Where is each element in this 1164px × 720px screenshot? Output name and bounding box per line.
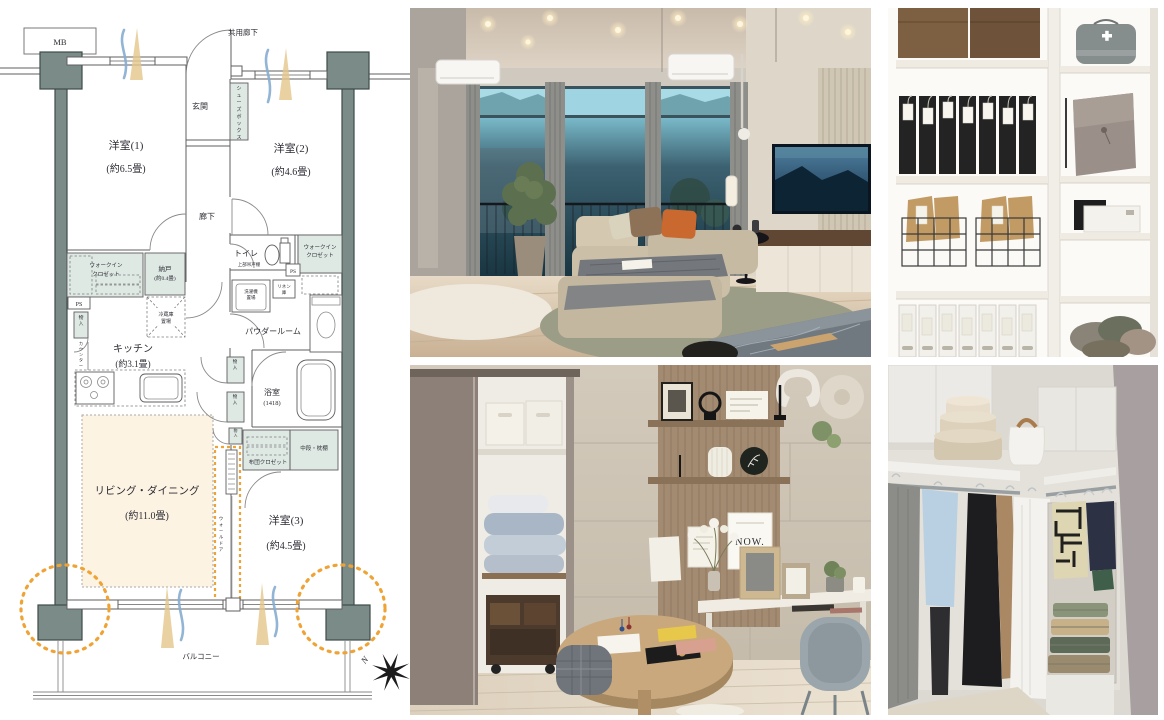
walk-in-closet-left: ウォークイン クロゼット	[67, 253, 143, 297]
ac-unit-left	[436, 60, 500, 84]
leaf-art	[740, 447, 768, 475]
label-living-dining-size: (約11.0畳)	[125, 509, 169, 522]
label-powder-room: パウダールーム	[245, 326, 301, 336]
photo-desk-room: NOW.	[410, 365, 871, 715]
plaid-pouf	[556, 645, 612, 695]
label-bathroom: 浴室	[264, 387, 280, 397]
label-bathroom-size: (1418)	[263, 400, 280, 407]
fridge-space: 冷蔵庫 置場	[147, 297, 185, 337]
label-nando: 納戸	[159, 264, 173, 273]
kitchen-fixtures	[75, 370, 185, 406]
navy-item	[1086, 501, 1116, 571]
label-kitchen-size: (約3.1畳)	[115, 358, 150, 369]
futon-closet: 中段・枕棚 布団クロゼット	[243, 430, 338, 470]
pipe-space-right: PS	[286, 264, 300, 276]
bucket-bag	[1009, 420, 1045, 465]
label-wall-door: ウォールドア	[219, 515, 224, 553]
label-mb: MB	[53, 37, 67, 47]
label-room1: 洋室(1)	[109, 138, 144, 152]
linen-cabinet: リネン 庫	[273, 280, 295, 298]
green-bag	[1092, 569, 1114, 591]
fabric-box	[526, 401, 562, 445]
label-kitchen: キッチン	[113, 343, 153, 355]
bathroom: 浴室 (1418)	[263, 360, 335, 420]
label-toilet-note: 上部吊戸棚	[238, 261, 261, 268]
storage-cart	[486, 595, 560, 674]
label-futon-closet: 布団クロゼット	[249, 458, 288, 466]
label-wic-right-1: ウォークイン	[303, 243, 337, 251]
label-washer-2: 置場	[247, 294, 256, 301]
label-fridge-1: 冷蔵庫	[158, 311, 173, 318]
stove-icon	[76, 372, 114, 404]
pillar-bottom-left	[38, 605, 82, 640]
base-cabinet	[1046, 675, 1114, 715]
label-counter: カウンター	[79, 341, 83, 368]
label-ps-left: PS	[76, 302, 83, 308]
gray-coat	[888, 483, 920, 709]
label-balcony: バルコニー	[182, 652, 219, 661]
label-entrance: 玄関	[192, 101, 208, 111]
label-wic-left-1: ウォークイン	[89, 261, 123, 269]
tv-screen	[772, 144, 871, 214]
flyer-page: MB 共用廊下	[0, 0, 1164, 720]
dark-pants	[930, 607, 950, 695]
label-room3: 洋室(3)	[269, 513, 304, 527]
envelope-folder	[1066, 93, 1136, 176]
black-dress	[962, 493, 1002, 687]
label-living-dining: リビング・ダイニング	[95, 484, 200, 497]
black-file-boxes	[899, 96, 1036, 174]
pen-cup	[853, 577, 865, 593]
now-card-text: NOW.	[735, 537, 764, 548]
cushion-orange	[661, 209, 697, 239]
bathtub-icon	[297, 360, 335, 420]
label-north: N	[358, 654, 371, 667]
label-common-corridor: 共用廊下	[228, 27, 258, 37]
walk-in-closet-right: ウォークイン クロゼット	[298, 235, 342, 294]
blue-shirt	[922, 489, 958, 607]
label-wic-right-2: クロゼット	[306, 251, 334, 259]
floor-plan: MB 共用廊下	[0, 0, 412, 720]
living-dining-area	[82, 415, 213, 587]
label-linen-2: 庫	[282, 289, 287, 296]
meter-box: MB	[24, 28, 96, 54]
pillar-bottom-right	[326, 605, 370, 640]
washer-space: 洗濯機 置場	[232, 280, 270, 312]
mirror-items	[1048, 489, 1116, 683]
photo-storage-shelves	[888, 8, 1158, 357]
wall-door: ウォールドア	[215, 447, 240, 605]
tv-console	[756, 230, 871, 292]
shelf-divider	[1048, 8, 1060, 357]
label-room2: 洋室(2)	[274, 141, 309, 155]
label-room3-size: (約4.5畳)	[266, 539, 305, 552]
pipe-space-left: PS	[68, 297, 90, 309]
toilet-icon	[265, 245, 279, 265]
sink-icon	[140, 374, 182, 402]
label-shelf: 中段・枕棚	[300, 444, 328, 452]
wall-right	[342, 87, 354, 607]
first-aid-pouch	[1076, 20, 1136, 64]
compass-icon: N	[358, 646, 412, 697]
label-room1-size: (約6.5畳)	[106, 162, 145, 175]
wind-light-icon-bottom-left	[161, 586, 183, 648]
label-washer-1: 洗濯機	[244, 288, 258, 295]
label-nando-size: (約0.4畳)	[154, 274, 176, 282]
white-file-boxes	[899, 305, 1036, 357]
kitchen-counter-mark: カウンター	[79, 341, 88, 370]
label-ps-right: PS	[290, 269, 296, 275]
wall-left	[55, 87, 67, 607]
label-fridge-2: 置場	[161, 318, 171, 325]
open-closet	[478, 377, 574, 674]
folded-blankets	[1046, 603, 1114, 715]
photo-walk-in-closet	[888, 365, 1158, 715]
wind-light-icon-top-left	[122, 28, 143, 80]
fabric-box	[486, 403, 524, 445]
label-monoire-left: 物入	[79, 314, 84, 327]
storage-room: 納戸 (約0.4畳)	[145, 253, 185, 295]
shoe-box: シューズボックス	[230, 83, 248, 141]
label-room2-size: (約4.6畳)	[271, 165, 310, 178]
label-corridor: 廊下	[199, 211, 215, 221]
cushion-brown	[629, 206, 664, 237]
label-wic-left-2: クロゼット	[92, 270, 120, 278]
photo-living-room	[410, 8, 871, 357]
label-monoire-c: 物入	[234, 428, 238, 438]
toilet-room: トイレ 上部吊戸棚	[234, 238, 290, 268]
label-toilet: トイレ	[234, 249, 258, 258]
wind-light-icon-bottom-right	[256, 583, 277, 645]
donut-decor	[820, 375, 864, 419]
patterned-scarf	[1052, 501, 1088, 579]
pillar-top-right	[327, 52, 369, 89]
vanity-icon	[310, 295, 342, 352]
hanging-clothes	[888, 474, 1050, 709]
